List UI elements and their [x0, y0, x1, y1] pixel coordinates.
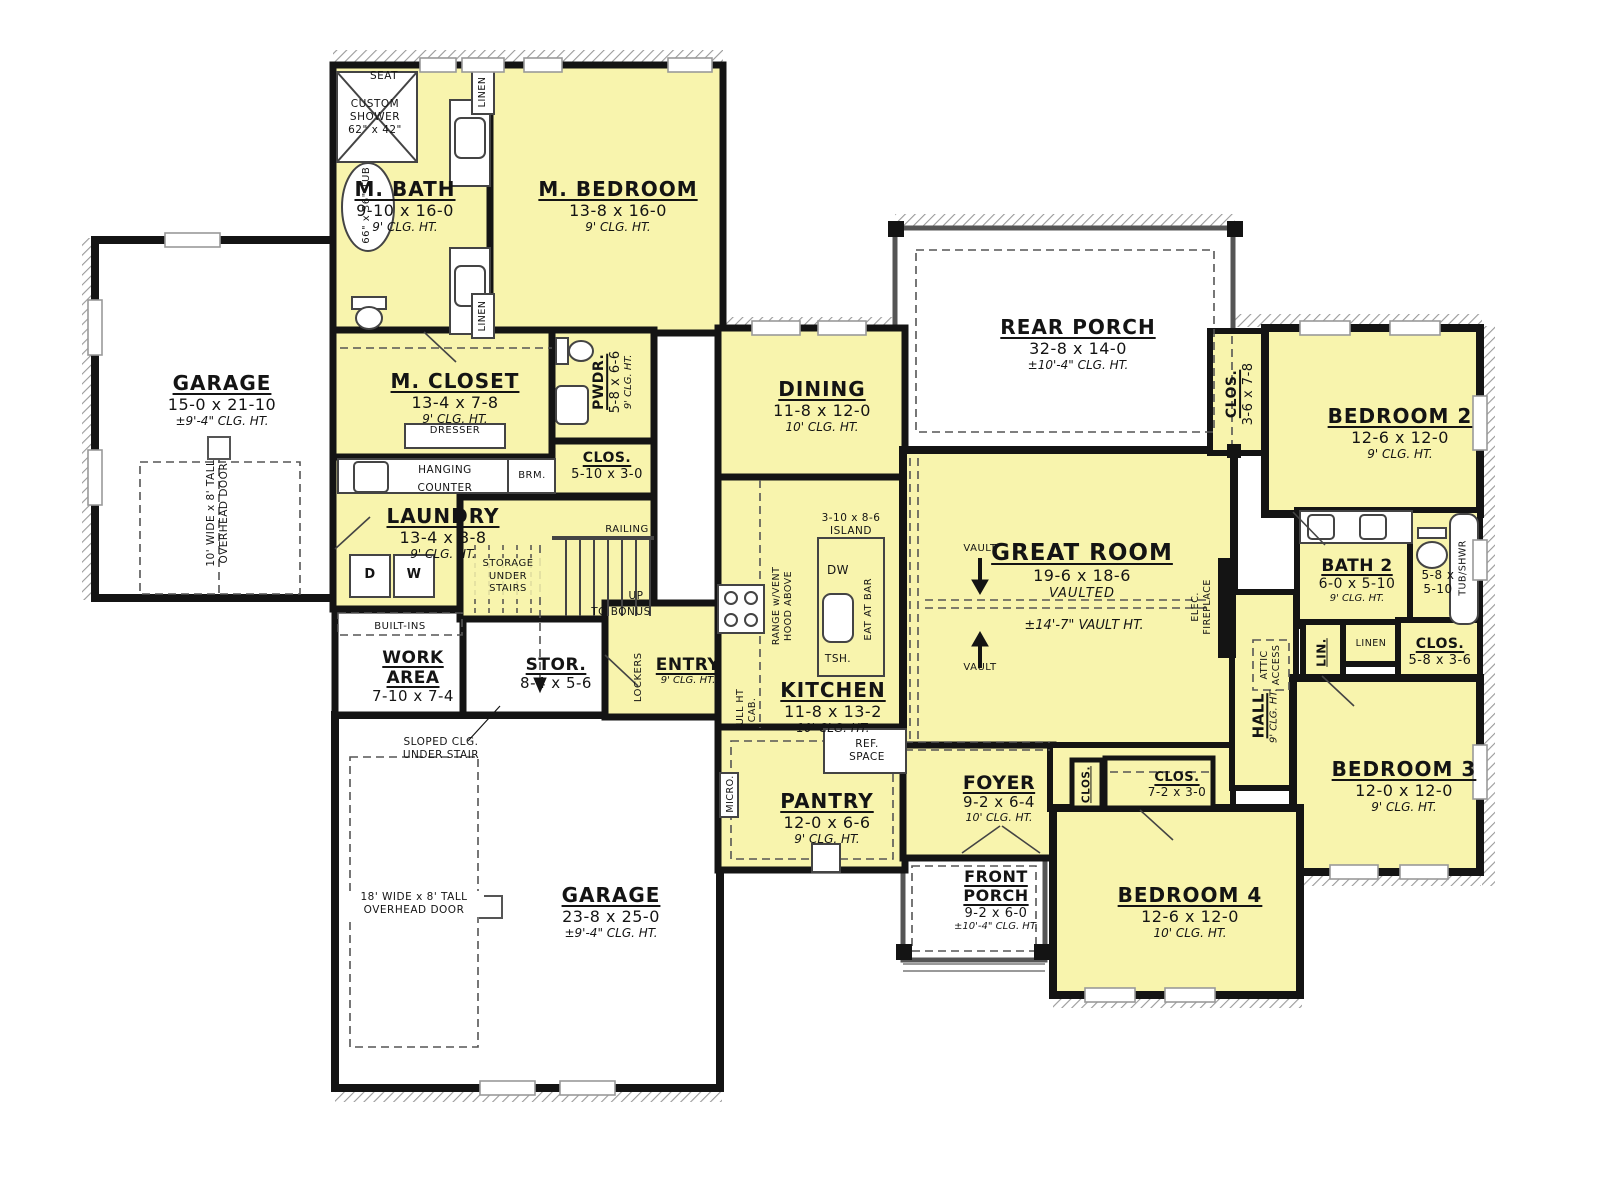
- up-note: UP: [616, 590, 656, 603]
- built-ins-note: BUILT-INS: [350, 621, 450, 634]
- entry-label: ENTRY 9' CLG. HT.: [638, 655, 738, 687]
- to-bonus-note: TO BONUS: [576, 606, 666, 619]
- room-dims: 11-8 x 13-2: [758, 703, 908, 722]
- range: [718, 585, 764, 633]
- window: [560, 1081, 615, 1095]
- room-name: ENTRY: [638, 655, 738, 675]
- vault-height-label: ±14'-7" VAULT HT.: [1004, 618, 1164, 633]
- room-dims: 23-8 x 25-0: [521, 908, 701, 927]
- room-name: M. BEDROOM: [528, 178, 708, 202]
- sink: [1360, 515, 1386, 539]
- room-name: LAUNDRY: [358, 505, 528, 529]
- room-clg: 10' CLG. HT.: [747, 420, 897, 434]
- burner: [725, 614, 737, 626]
- room-name: BEDROOM 2: [1310, 405, 1490, 429]
- window: [524, 58, 562, 72]
- storage-under-stairs-note: STORAGE UNDER STAIRS: [468, 558, 548, 596]
- room-clg: 9' CLG. HT.: [623, 317, 635, 447]
- room-dims: 5-8 x 6-6: [608, 317, 623, 447]
- great-room-label: GREAT ROOM 19-6 x 18-6 VAULTED: [982, 540, 1182, 601]
- window: [88, 300, 102, 355]
- room-dims: 12-6 x 12-0: [1100, 908, 1280, 927]
- washer-label: W: [399, 567, 429, 583]
- ref-space-note: REF. SPACE: [832, 738, 902, 764]
- sloped-clg-note: SLOPED CLG. UNDER STAIR: [386, 736, 496, 762]
- room-name: M. BATH: [325, 178, 485, 202]
- window: [1165, 988, 1215, 1002]
- kitchen-label: KITCHEN 11-8 x 13-2 10' CLG. HT.: [758, 679, 908, 736]
- room-dims: 9-2 x 6-4: [939, 794, 1059, 812]
- room-name: GREAT ROOM: [982, 540, 1182, 567]
- clos-hall-label: CLOS. 7-2 x 3-0: [1127, 770, 1227, 799]
- work-area-label: WORK AREA 7-10 x 7-4: [363, 648, 463, 706]
- room-dims: 12-6 x 12-0: [1310, 429, 1490, 448]
- porch-post: [1227, 221, 1243, 237]
- fireplace: [1218, 558, 1236, 658]
- room-clg: ±10'-4" CLG. HT.: [941, 921, 1051, 933]
- toilet: [1417, 542, 1447, 568]
- window: [1085, 988, 1135, 1002]
- room-clg: 9' CLG. HT.: [638, 675, 738, 687]
- window: [1390, 321, 1440, 335]
- room-name: PWDR.: [591, 317, 608, 447]
- room-clg: 9' CLG. HT.: [1314, 800, 1494, 814]
- room-name: CLOS.: [1224, 339, 1241, 449]
- linen-note: LINEN: [477, 286, 489, 346]
- window: [420, 58, 456, 72]
- sink: [1308, 515, 1334, 539]
- sink: [556, 386, 588, 424]
- toilet: [569, 341, 593, 361]
- eat-at-bar-note: EAT AT BAR: [863, 559, 876, 659]
- room-dims: 3-6 x 7-8: [1241, 339, 1256, 449]
- toilet: [356, 307, 382, 329]
- linen-note: LINEN: [477, 62, 489, 122]
- m-closet-label: M. CLOSET 13-4 x 7-8 9' CLG. HT.: [365, 370, 545, 427]
- linen-note: LINEN: [1341, 638, 1401, 650]
- clos-bedroom2-label: CLOS. 3-6 x 7-8: [1224, 339, 1256, 449]
- laundry-label: LAUNDRY 13-4 x 8-8 9' CLG. HT.: [358, 505, 528, 562]
- porch-steps: [903, 964, 1045, 971]
- room-name: DINING: [747, 378, 897, 402]
- room-dims: 12-0 x 6-6: [752, 814, 902, 833]
- toilet-tank: [556, 338, 568, 364]
- tub-note: 66" x 36" TUB: [361, 150, 374, 260]
- porch-post: [888, 221, 904, 237]
- room-name: FOYER: [939, 772, 1059, 794]
- room-clg: 9' CLG. HT.: [1310, 447, 1490, 461]
- room-clg: 9' CLG. HT.: [752, 832, 902, 846]
- overhead-door2-note: 18' WIDE x 8' TALL OVERHEAD DOOR: [344, 891, 484, 917]
- lin-note: LIN.: [1315, 628, 1330, 678]
- burner: [725, 592, 737, 604]
- room-dims: 11-8 x 12-0: [747, 402, 897, 421]
- m-bath-label: M. BATH 9-10 x 16-0 9' CLG. HT.: [325, 178, 485, 235]
- window: [1400, 865, 1448, 879]
- room-dims: 8-4 x 5-6: [506, 675, 606, 693]
- m-bedroom-label: M. BEDROOM 13-8 x 16-0 9' CLG. HT.: [528, 178, 708, 235]
- island-note: 3-10 x 8-6 ISLAND: [801, 512, 901, 538]
- room-name: STOR.: [506, 655, 606, 675]
- pwdr-label: PWDR. 5-8 x 6-6 9' CLG. HT.: [591, 317, 635, 447]
- overhead-door1-note: 10' WIDE x 8' TALL OVERHEAD DOOR: [205, 438, 231, 588]
- room-name: CLOS.: [1390, 636, 1490, 653]
- room-dims: 9-2 x 6-0: [941, 906, 1051, 921]
- room-dims: 19-6 x 18-6: [982, 567, 1182, 586]
- room-name: KITCHEN: [758, 679, 908, 703]
- window: [752, 321, 800, 335]
- room-dims: 7-10 x 7-4: [363, 688, 463, 706]
- bath2-label: BATH 2 6-0 x 5-10 9' CLG. HT.: [1297, 556, 1417, 604]
- vault-height: ±14'-7" VAULT HT.: [1004, 618, 1164, 633]
- vault-note: VAULT: [950, 662, 1010, 675]
- room-name: BEDROOM 4: [1100, 884, 1280, 908]
- room-name: REAR PORCH: [978, 316, 1178, 340]
- trash-label: TSH.: [813, 653, 863, 666]
- custom-shower-note: CUSTOM SHOWER 62" x 42": [330, 98, 420, 137]
- broom-note: BRM.: [507, 470, 557, 483]
- porch-post: [896, 944, 912, 960]
- room-clg: ±10'-4" CLG. HT.: [978, 358, 1178, 372]
- room-clg: 10' CLG. HT.: [758, 721, 908, 735]
- room-dims: 5-8 x 3-6: [1390, 653, 1490, 668]
- room-dims: 7-2 x 3-0: [1127, 785, 1227, 799]
- dryer-label: D: [355, 567, 385, 583]
- burner: [745, 614, 757, 626]
- room-clg: 9' CLG. HT.: [528, 220, 708, 234]
- room-dims: 9-10 x 16-0: [325, 202, 485, 221]
- tub-shwr-note: TUB/SHWR: [1458, 520, 1470, 615]
- room-dims: 6-0 x 5-10: [1297, 576, 1417, 593]
- window: [88, 450, 102, 505]
- room-name: CLOS.: [1127, 770, 1227, 785]
- room-name: M. CLOSET: [365, 370, 545, 394]
- toilet-tank: [1418, 528, 1446, 538]
- burner: [745, 592, 757, 604]
- bedroom4-label: BEDROOM 4 12-6 x 12-0 10' CLG. HT.: [1100, 884, 1280, 941]
- counter-note: COUNTER: [400, 482, 490, 495]
- seat-note: SEAT: [359, 70, 409, 83]
- laundry-sink: [354, 462, 388, 492]
- room-dims: 13-4 x 8-8: [358, 529, 528, 548]
- sink: [455, 118, 485, 158]
- window: [1300, 321, 1350, 335]
- room-name: GARAGE: [521, 884, 701, 908]
- room-clg: 10' CLG. HT.: [939, 812, 1059, 825]
- room-dims: 12-0 x 12-0: [1314, 782, 1494, 801]
- clos-bedroom3-label: CLOS. 5-8 x 3-6: [1390, 636, 1490, 668]
- room-clg: 9' CLG. HT.: [325, 220, 485, 234]
- hanging-note: HANGING: [400, 464, 490, 477]
- bedroom3-label: BEDROOM 3 12-0 x 12-0 9' CLG. HT.: [1314, 758, 1494, 815]
- clos-mud-label: CLOS. 5-10 x 3-0: [557, 450, 657, 482]
- pantry-sink: [812, 844, 840, 872]
- foyer-label: FOYER 9-2 x 6-4 10' CLG. HT.: [939, 772, 1059, 825]
- micro-note: MICRO.: [725, 764, 737, 824]
- elec-fireplace-note: ELEC. FIREPLACE: [1190, 557, 1214, 657]
- dresser-note: DRESSER: [415, 425, 495, 438]
- bedroom2-label: BEDROOM 2 12-6 x 12-0 9' CLG. HT.: [1310, 405, 1490, 462]
- room-name: WORK AREA: [363, 648, 463, 688]
- window: [1330, 865, 1378, 879]
- garage-left-label: GARAGE 15-0 x 21-10 ±9'-4" CLG. HT.: [132, 372, 312, 429]
- pantry-label: PANTRY 12-0 x 6-6 9' CLG. HT.: [752, 790, 902, 847]
- full-height-cabinet-note: FULL HT CAB.: [735, 675, 759, 745]
- room-clg: ±9'-4" CLG. HT.: [521, 926, 701, 940]
- window: [668, 58, 712, 72]
- room-clg: 9' CLG. HT.: [1297, 593, 1417, 605]
- window: [165, 233, 220, 247]
- rear-porch-label: REAR PORCH 32-8 x 14-0 ±10'-4" CLG. HT.: [978, 316, 1178, 373]
- room-name: BEDROOM 3: [1314, 758, 1494, 782]
- stor-label: STOR. 8-4 x 5-6: [506, 655, 606, 693]
- room-dims: 15-0 x 21-10: [132, 396, 312, 415]
- vault-note: VAULT: [950, 543, 1010, 556]
- clos-foyer-label: CLOS.: [1080, 760, 1093, 810]
- room-dims: 13-8 x 16-0: [528, 202, 708, 221]
- range-hood-note: RANGE w/VENT HOOD ABOVE: [771, 551, 795, 661]
- room-name: CLOS.: [557, 450, 657, 467]
- floor-plan: GARAGE 15-0 x 21-10 ±9'-4" CLG. HT. M. B…: [0, 0, 1600, 1200]
- room-dims: 32-8 x 14-0: [978, 340, 1178, 359]
- dining-label: DINING 11-8 x 12-0 10' CLG. HT.: [747, 378, 897, 435]
- room-clg: 10' CLG. HT.: [1100, 926, 1280, 940]
- railing-note: RAILING: [587, 524, 667, 537]
- porch-post: [1034, 944, 1050, 960]
- room-name: FRONT PORCH: [941, 868, 1051, 906]
- room-name: GARAGE: [132, 372, 312, 396]
- dishwasher-label: DW: [818, 563, 858, 578]
- front-porch-label: FRONT PORCH 9-2 x 6-0 ±10'-4" CLG. HT.: [941, 868, 1051, 933]
- room-dims: 5-10 x 3-0: [557, 467, 657, 482]
- window: [1473, 540, 1487, 580]
- room-name: BATH 2: [1297, 556, 1417, 576]
- island-sink: [823, 594, 853, 642]
- lockers-note: LOCKERS: [633, 637, 646, 717]
- window: [818, 321, 866, 335]
- garage-main-label: GARAGE 23-8 x 25-0 ±9'-4" CLG. HT.: [521, 884, 701, 941]
- room-name: PANTRY: [752, 790, 902, 814]
- room-vaulted: VAULTED: [982, 586, 1182, 601]
- room-dims: 13-4 x 7-8: [365, 394, 545, 413]
- window: [480, 1081, 535, 1095]
- room-clg: ±9'-4" CLG. HT.: [132, 414, 312, 428]
- attic-access-note: ATTIC ACCESS: [1259, 635, 1283, 695]
